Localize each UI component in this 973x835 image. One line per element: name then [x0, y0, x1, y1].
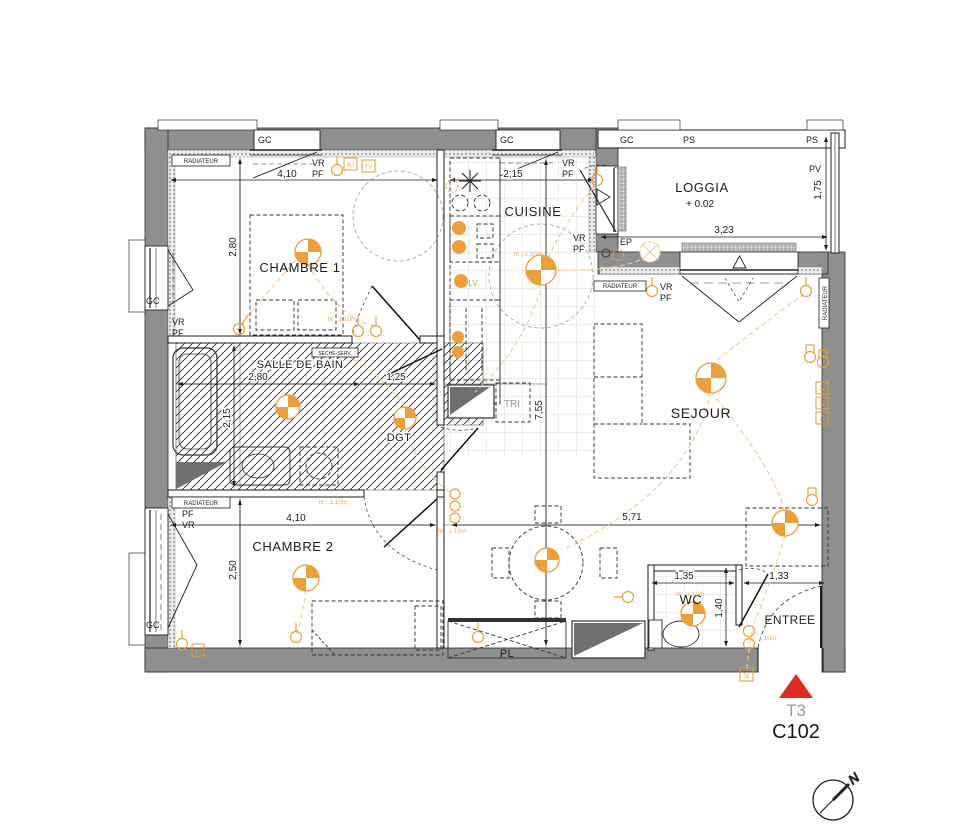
tv-label: TV [365, 165, 372, 171]
dim-entree-width: 1,33 [769, 571, 789, 582]
floor-plan-page: CHAMBRE 1 CUISINE LOGGIA + 0.02 SALLE DE… [0, 0, 973, 835]
ps-label: PS [806, 135, 818, 145]
rj-label: RJ [820, 384, 826, 391]
dim-sdb-width: 2,80 [248, 372, 268, 383]
gc-label: GC [258, 135, 272, 145]
dim-cuisine-width: 2,15 [503, 169, 523, 180]
room-label-pl: PL [500, 648, 514, 660]
vr-label: VR [312, 158, 325, 168]
switch-icon [332, 156, 343, 176]
radiateur-label: RADIATEUR [184, 501, 219, 507]
ceiling-light-icon [535, 548, 559, 572]
pf-label: PF [660, 293, 672, 303]
gc-label: GC [146, 620, 160, 630]
tri-label: TRI [504, 399, 520, 410]
ceiling-light-icon [696, 363, 726, 393]
room-label-entree: ENTREE [764, 613, 815, 627]
dim-chambre2-height: 2,50 [228, 560, 239, 580]
outlet-icon [291, 623, 302, 643]
french-door-sejour-loggia [680, 243, 798, 322]
switch-icon [371, 316, 382, 337]
entrance-marker-icon [779, 674, 813, 698]
switch-icon [614, 592, 634, 603]
wall-light-icon [640, 242, 660, 262]
room-label-chambre2: CHAMBRE 2 [252, 539, 333, 554]
sofa-sejour [594, 324, 690, 478]
dim-dgt-width: 1,25 [386, 372, 406, 383]
rj-label: RJ [347, 163, 354, 169]
height-note: ht : 1.10m [676, 591, 705, 598]
ceiling-light-icon [526, 255, 556, 285]
dim-chambre1-width: 4,10 [277, 169, 297, 180]
pf-label: PF [172, 328, 184, 338]
tv-label: TV [820, 414, 826, 421]
dim-wc-width: 1,35 [674, 571, 694, 582]
outlet-icon [807, 488, 818, 506]
pf-label: PF [312, 169, 324, 179]
vr-label: VR [573, 233, 586, 243]
door-chambre2 [364, 497, 437, 570]
room-label-loggia: LOGGIA [675, 180, 728, 195]
unit-type: T3 [786, 701, 806, 720]
height-note: ht : 1.10m [514, 251, 543, 258]
door-entrance [758, 586, 823, 672]
dim-loggia-width: 3,23 [714, 225, 734, 236]
ceiling-light-icon [276, 395, 300, 419]
vr-label: VR [182, 520, 195, 530]
dim-chambre2-width: 4,10 [286, 513, 306, 524]
room-label-sejour: SEJOUR [671, 405, 731, 421]
outlet-icon [805, 345, 816, 363]
room-label-chambre1: CHAMBRE 1 [259, 260, 340, 275]
dim-sejour-width: 5,71 [622, 512, 642, 523]
gc-label: GC [620, 135, 634, 145]
lv-label: LV [468, 279, 478, 288]
radiateur-label: RADIATEUR [823, 285, 829, 320]
outlet-icon [473, 623, 484, 643]
height-note: ht : 1.10m [748, 635, 777, 642]
floor-plan-canvas: CHAMBRE 1 CUISINE LOGGIA + 0.02 SALLE DE… [0, 0, 973, 835]
pf-label: PF [562, 169, 574, 179]
room-label-cuisine: CUISINE [505, 204, 562, 219]
outlet-icon [177, 630, 188, 650]
room-label-salle-de-bain: SALLE DE BAIN [257, 359, 344, 371]
switch-icon [647, 277, 658, 297]
height-note: ht : 1.10m [319, 499, 348, 506]
dim-chambre1-height: 2,80 [228, 237, 239, 257]
switch-icon [234, 315, 249, 335]
seche-serviette-label: SECHE-SERV. [318, 351, 351, 357]
rj-label: RJ [195, 650, 202, 656]
unit-number: C102 [772, 721, 820, 743]
north-compass-icon: N [813, 769, 862, 820]
radiateur-label: RADIATEUR [184, 159, 219, 165]
door-chambre1 [352, 286, 420, 340]
dim-sejour-height: 7,55 [534, 400, 545, 420]
pv-label: PV [809, 164, 821, 174]
switch-icon [801, 277, 812, 297]
vr-label: VR [562, 158, 575, 168]
ps-label: PS [683, 135, 695, 145]
radiateur-label: RADIATEUR [603, 284, 638, 290]
bed-chambre2 [312, 601, 443, 655]
loggia-level: + 0.02 [686, 199, 715, 210]
vr-label: VR [660, 282, 673, 292]
pf-label: PF [573, 244, 585, 254]
ep-label: EP [620, 237, 632, 247]
pf-label: PF [182, 509, 194, 519]
dim-sdb-height: 2,15 [222, 408, 233, 428]
ceiling-light-icon [293, 565, 319, 591]
vr-label: VR [172, 317, 185, 327]
room-label-dgt: DGT [387, 432, 411, 444]
gc-label: GC [146, 296, 160, 306]
dim-loggia-depth: 1,75 [813, 180, 824, 200]
entrance-marker: T3 C102 [772, 674, 820, 743]
ceiling-light-icon [394, 407, 416, 429]
height-note: ht : 1.10m [438, 528, 467, 535]
dim-wc-height: 1,40 [714, 598, 725, 618]
height-note: ht : 1.10m [328, 316, 357, 323]
ceiling-light-icon [772, 510, 798, 536]
rj-label: RJ [820, 399, 826, 406]
s-label: S [744, 671, 749, 680]
gc-label: GC [500, 135, 514, 145]
